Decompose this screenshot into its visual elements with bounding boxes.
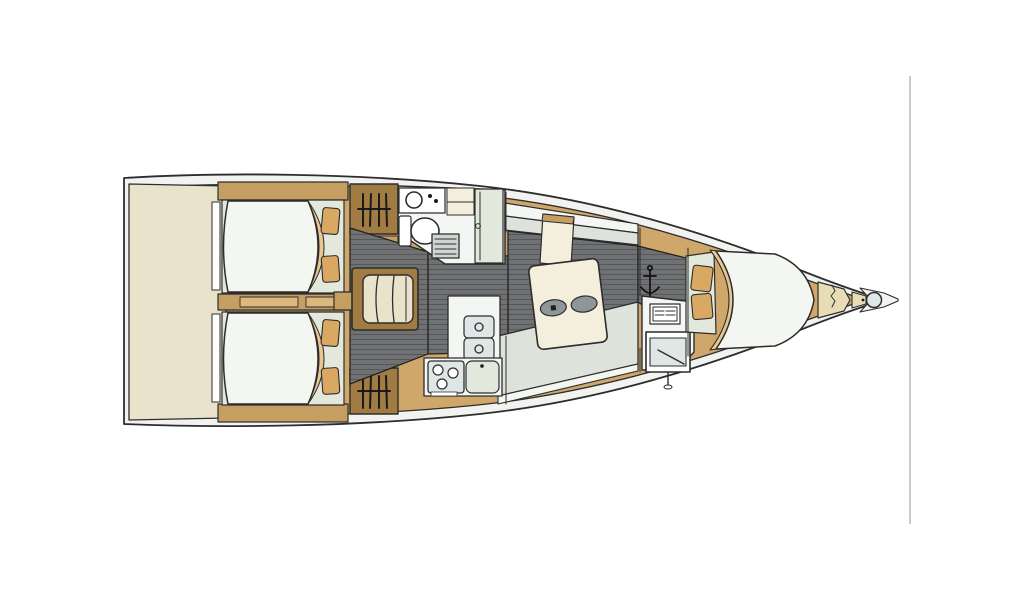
boat-floor-plan — [0, 0, 1024, 600]
aft-cabin-divider-panel — [306, 297, 334, 307]
shower-grate-icon — [432, 234, 459, 258]
aft-cabin-divider-panel — [240, 297, 298, 307]
salon-table — [528, 258, 608, 350]
head-cupboard — [447, 202, 474, 215]
berth-pillow — [691, 293, 713, 320]
berth-pillow — [321, 255, 340, 282]
berth-headboard — [212, 202, 220, 290]
berth-pillow — [321, 367, 340, 394]
head-cupboard — [447, 188, 474, 202]
aft-shelf-bottom — [218, 404, 348, 422]
berth-headboard — [212, 314, 220, 402]
aft-cabin-port-berth — [222, 200, 344, 293]
aft-cabin-starboard-berth — [222, 312, 344, 405]
stove-burners-icon — [428, 361, 464, 393]
shower-stall — [475, 189, 503, 263]
galley-sink — [464, 316, 494, 360]
floor-plan-canvas — [0, 0, 1024, 600]
berth-pillow — [321, 319, 340, 346]
washbasin-icon — [399, 188, 445, 213]
vent-grille-icon — [650, 304, 680, 324]
hanging-locker-aft-top — [350, 184, 398, 234]
berth-pillow — [321, 207, 340, 234]
berth-pillow — [690, 265, 713, 292]
stern-platform — [129, 184, 226, 420]
aft-shelf-top — [218, 182, 348, 200]
